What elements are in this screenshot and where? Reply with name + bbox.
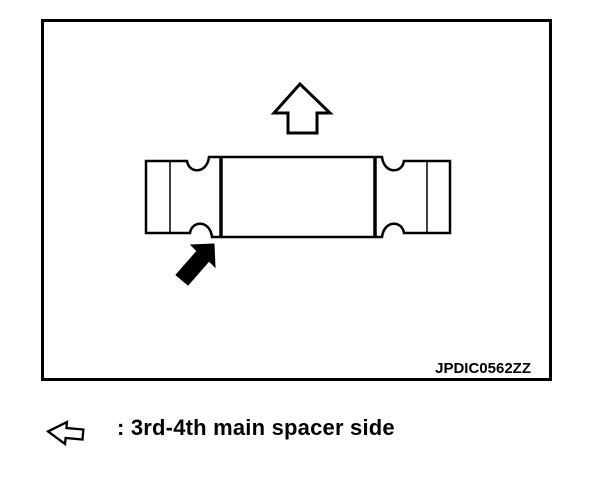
spacer-part-drawing [146, 157, 450, 237]
figure-page: JPDIC0562ZZ : 3rd-4th main spacer side [0, 0, 608, 486]
spacer-side-pointer-icon [176, 244, 215, 285]
legend-text: : 3rd-4th main spacer side [117, 415, 395, 441]
left-arrow-icon [46, 418, 88, 448]
image-code-label: JPDIC0562ZZ [435, 360, 531, 377]
spacer-diagram [44, 22, 549, 378]
spacer-outline [146, 157, 450, 237]
up-direction-arrow-icon [274, 84, 330, 133]
diagram-frame: JPDIC0562ZZ [41, 19, 552, 381]
